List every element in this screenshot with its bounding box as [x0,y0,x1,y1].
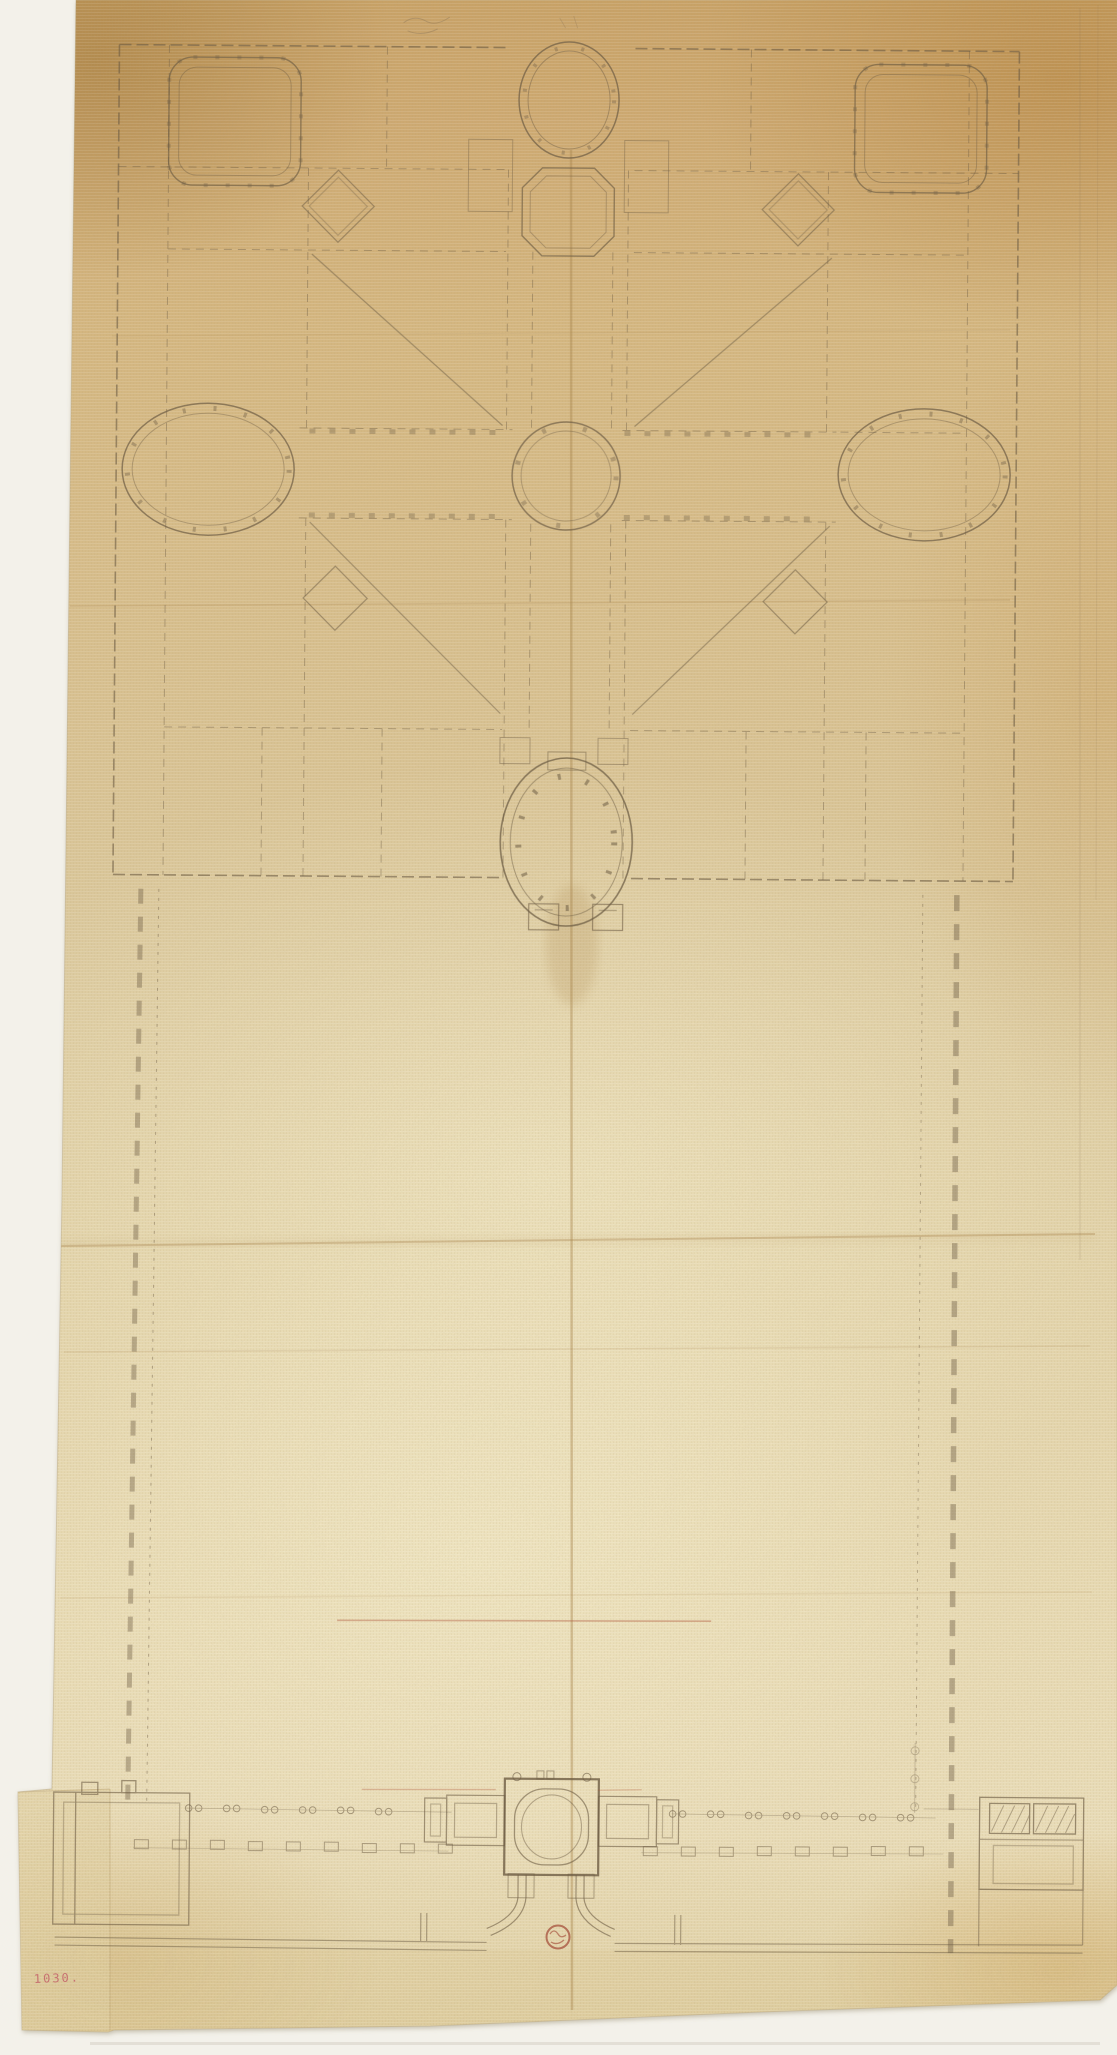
inventory-number: 1030. [34,1970,81,1986]
stain-below-rotunda [546,885,598,1005]
scanned-drawing-page: 1030. [0,0,1117,2055]
scan-bottom-shadow [90,2042,1100,2045]
drawing-scan: 1030. [0,0,1117,2055]
